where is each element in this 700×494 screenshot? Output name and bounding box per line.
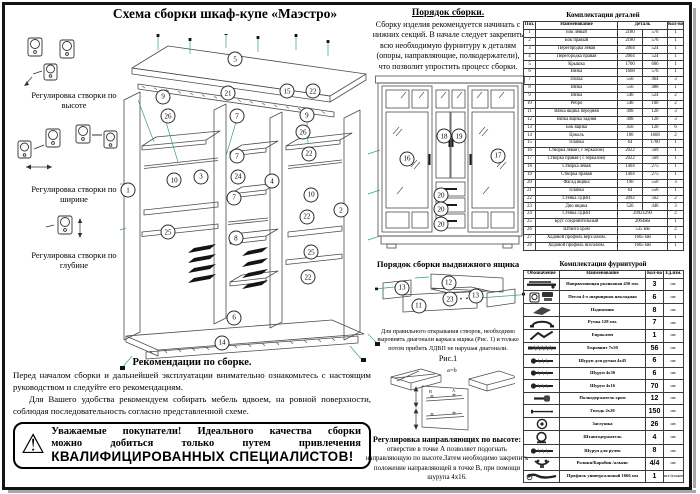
callout-7: 7: [229, 149, 244, 164]
point-a-label: А: [452, 388, 456, 393]
callout-20: 20: [434, 217, 449, 232]
callout-8: 8: [228, 231, 243, 246]
page-title: Схема сборки шкаф-купе «Маэстро»: [60, 6, 390, 22]
screw-icon: [524, 445, 560, 458]
parts-row: 12Вязка ящика задняя4981203: [524, 116, 684, 124]
hardware-row: Петля 4-х шарнирная накладная6шт.: [524, 291, 684, 304]
hinge-height-adjust-icon: [14, 35, 134, 91]
parts-row: 22Стенка ЛДВП20925622: [524, 195, 684, 203]
roller-icon: [524, 457, 560, 470]
recommendations-para-1: Перед началом сборки и дальнейшей эксплу…: [13, 370, 371, 394]
callout-9: 9: [299, 108, 314, 123]
hardware-row: Направляющая роликовая 450 мм.3шт.: [524, 278, 684, 291]
hardware-row: Подпятник8шт.: [524, 304, 684, 317]
col-pos: Поз.: [524, 22, 536, 30]
callout-25: 25: [161, 225, 176, 240]
parts-row: 25Брус соединительный2064мм1: [524, 219, 684, 227]
hardware-row: Евроключ1шт.: [524, 329, 684, 342]
hardware-table-title: Комплектация фурнитурой: [523, 260, 683, 268]
confirmat-icon: [524, 342, 560, 355]
instruction-sheet: Схема сборки шкаф-купе «Маэстро» Регулир…: [2, 2, 692, 490]
cap-icon: [524, 418, 560, 431]
main-callouts: 5211522926792622732441017102222582522614: [118, 34, 380, 372]
warning-triangle-icon: ⚠: [21, 431, 45, 458]
warning-line-3: КВАЛИФИЦИРОВАННЫХ СПЕЦИАЛИСТОВ!: [51, 450, 361, 465]
col-hw-unit: Ед.изм.: [664, 270, 684, 278]
parts-table-title: Комплектация деталей: [523, 11, 683, 19]
callout-26: 26: [161, 109, 176, 124]
scan-shadow-bottom: [8, 490, 696, 493]
callout-10: 10: [167, 173, 182, 188]
figure-label: Рис.1: [372, 354, 524, 363]
callout-12: 12: [441, 275, 456, 290]
parts-row: 23Дно ящика5264463: [524, 203, 684, 211]
parts-row: 6Вязка16685761: [524, 69, 684, 77]
parts-row: 17Створка правая ( с зеркалом)20225691: [524, 156, 684, 164]
col-symbol: Обозначение: [524, 270, 560, 278]
screw-icon: [524, 380, 560, 393]
col-hw-name: Наименование: [560, 270, 646, 278]
callout-23: 23: [443, 292, 458, 307]
hinge-width-adjust-icon: [14, 119, 134, 185]
figure-equality-label: а=b: [447, 367, 457, 374]
hardware-header-row: Обозначение Наименование Кол-во Ед.изм.: [524, 270, 684, 278]
callout-19: 19: [452, 129, 467, 144]
hardware-row: Штангодержатель4шт.: [524, 431, 684, 445]
callout-25: 25: [304, 245, 319, 260]
callout-11: 11: [411, 298, 426, 313]
front-callouts: 16181917202020: [375, 72, 525, 257]
nail-icon: [524, 405, 560, 418]
hardware-row: Шуруп для ручки 4х456шт.: [524, 355, 684, 368]
screw-icon: [524, 355, 560, 368]
callout-18: 18: [437, 129, 452, 144]
hardware-row: Шуруп 4х1670шт.: [524, 380, 684, 393]
shelf-pin-icon: [524, 392, 560, 405]
callout-26: 26: [295, 125, 310, 140]
callout-10: 10: [304, 187, 319, 202]
hardware-row: Евровинт 7х5056шт.: [524, 342, 684, 355]
parts-header-row: Поз. Наименование Деталь Кол-во: [524, 22, 684, 30]
callout-14: 14: [215, 335, 230, 350]
hinge-depth-label: Регулировка створки по глубине: [18, 251, 130, 271]
parts-row: 3Перегородка левая20645241: [524, 45, 684, 53]
callout-22: 22: [301, 146, 316, 161]
foot-icon: [524, 304, 560, 317]
hardware-row: Ролики/Карабин /альянс4/4шт.: [524, 457, 684, 470]
parts-row: 10Ребро5401002: [524, 100, 684, 108]
parts-row: 8Вязка5564881: [524, 85, 684, 93]
hardware-row: Гвоздь 2х20150шт.: [524, 405, 684, 418]
callout-1: 1: [120, 183, 135, 198]
callout-7: 7: [229, 109, 244, 124]
callout-13: 13: [468, 288, 483, 303]
recommendations-heading: Рекомендации по сборке.: [13, 357, 371, 368]
screw-icon: [524, 367, 560, 380]
hinge-height-label: Регулировка створки по высоте: [18, 91, 130, 111]
callout-20: 20: [434, 188, 449, 203]
hardware-row: Полкодержатель хром12шт.: [524, 392, 684, 405]
parts-row: 19Створка правая14042751: [524, 171, 684, 179]
callout-2: 2: [333, 203, 348, 218]
tables-panel: Комплектация деталей Поз. Наименование Д…: [523, 9, 683, 483]
parts-row: 9Вязка5405242: [524, 93, 684, 101]
parts-row: 15Планка6417001: [524, 140, 684, 148]
rod-holder-icon: [524, 431, 560, 445]
rail-adjustment-heading: Регулировка направляющих по высоте:: [365, 435, 529, 444]
drawer-assembly-heading: Порядок сборки выдвижного ящика: [369, 259, 527, 269]
scan-shadow-right: [693, 8, 696, 488]
parts-table-body: 1Бок левый218057612Бок правый218057613Пе…: [524, 29, 684, 250]
parts-row: 5Крышка17006061: [524, 61, 684, 69]
col-detail: Деталь: [618, 22, 668, 30]
callout-7: 7: [227, 190, 242, 205]
drawer-callouts: 1312231311: [375, 270, 525, 326]
hardware-table: Обозначение Наименование Кол-во Ед.изм. …: [523, 270, 684, 483]
profile-icon: [524, 470, 560, 483]
hinge-icon: [524, 291, 560, 304]
parts-row: 18Створка левая14042751: [524, 164, 684, 172]
callout-15: 15: [279, 84, 294, 99]
hardware-row: Шуруп для ручек8шт.: [524, 445, 684, 458]
callout-13: 13: [395, 280, 410, 295]
callout-3: 3: [194, 169, 209, 184]
rail-adjustment-text: отверстие в точке А позволяет подогнать …: [365, 445, 529, 482]
point-b-label: В: [429, 389, 432, 394]
parts-row: 24Стенка ЛДВП2092х2902: [524, 211, 684, 219]
parts-row: 28Ходовой профиль низ/алюм.1665 мм1: [524, 242, 684, 250]
callout-22: 22: [305, 84, 320, 99]
hardware-row: Ручка 128 мм.7шт.: [524, 316, 684, 329]
hinge-width-label: Регулировка створки по ширине: [18, 185, 130, 205]
hinge-depth-adjust-icon: [14, 213, 134, 251]
callout-6: 6: [227, 310, 242, 325]
callout-20: 20: [434, 202, 449, 217]
hardware-row: Шуруп 4х306шт.: [524, 367, 684, 380]
hardware-table-body: Направляющая роликовая 450 мм.3шт.Петля …: [524, 278, 684, 483]
warning-box: ⚠ Уважаемые покупатели! Идеального качес…: [13, 422, 371, 470]
front-view-diagram: 16181917202020: [375, 72, 525, 257]
parts-row: 16Створка левая ( с зеркалом)20225691: [524, 148, 684, 156]
handle-icon: [524, 316, 560, 329]
parts-row: 26Штанга хром535 мм2: [524, 227, 684, 235]
warning-line-1: Уважаемые покупатели! Идеального качеств…: [51, 426, 361, 438]
parts-row: 27Ходовой профиль верх/алюм.1665 мм1: [524, 235, 684, 243]
callout-4: 4: [265, 174, 280, 189]
callout-22: 22: [299, 209, 314, 224]
hexkey-icon: [524, 329, 560, 342]
parts-row: 21Планка645561: [524, 187, 684, 195]
drawer-assembly-diagram: 1312231311: [375, 270, 525, 326]
parts-row: 11Вязка ящика передняя4981203: [524, 108, 684, 116]
col-hw-qty: Кол-во: [646, 270, 664, 278]
callout-16: 16: [399, 151, 414, 166]
parts-row: 2Бок правый21805761: [524, 37, 684, 45]
callout-17: 17: [491, 148, 506, 163]
parts-row: 13Бок ящика4501206: [524, 124, 684, 132]
warning-text: Уважаемые покупатели! Идеального качеств…: [51, 426, 361, 465]
callout-22: 22: [300, 270, 315, 285]
drawer-note: Для правильного открывания створок, необ…: [369, 328, 527, 353]
assembly-order-text: Сборку изделия рекомендуется начинать с …: [371, 20, 525, 72]
parts-row: 14Цоколь10016682: [524, 132, 684, 140]
callout-21: 21: [221, 86, 236, 101]
recommendations-block: Рекомендации по сборке. Перед началом сб…: [13, 357, 371, 469]
callout-24: 24: [230, 169, 245, 184]
rail-icon: [524, 278, 560, 291]
hardware-row: Заглушка26шт.: [524, 418, 684, 431]
parts-row: 7Полка5564643: [524, 77, 684, 85]
callout-5: 5: [228, 52, 243, 67]
main-assembly-diagram: 5211522926792622732441017102222582522614: [118, 34, 380, 372]
parts-row: 20Фасад ящика1905503: [524, 179, 684, 187]
col-qty: Кол-во: [668, 22, 684, 30]
parts-table: Поз. Наименование Деталь Кол-во 1Бок лев…: [523, 21, 684, 251]
rail-adjustment-diagram: В А: [410, 383, 472, 433]
parts-row: 4Перегородка правая20645241: [524, 53, 684, 61]
assembly-order-heading: Порядок сборки.: [372, 8, 524, 18]
parts-row: 1Бок левый21805761: [524, 29, 684, 37]
warning-line-2: можно добиться только путем привлечения: [51, 438, 361, 450]
col-name: Наименование: [536, 22, 618, 30]
recommendations-para-2: Для Вашего удобства рекомендуем собирать…: [13, 394, 371, 418]
hardware-row: Профиль универсальный 1666 мм1шт./альянс: [524, 470, 684, 483]
callout-9: 9: [156, 89, 171, 104]
